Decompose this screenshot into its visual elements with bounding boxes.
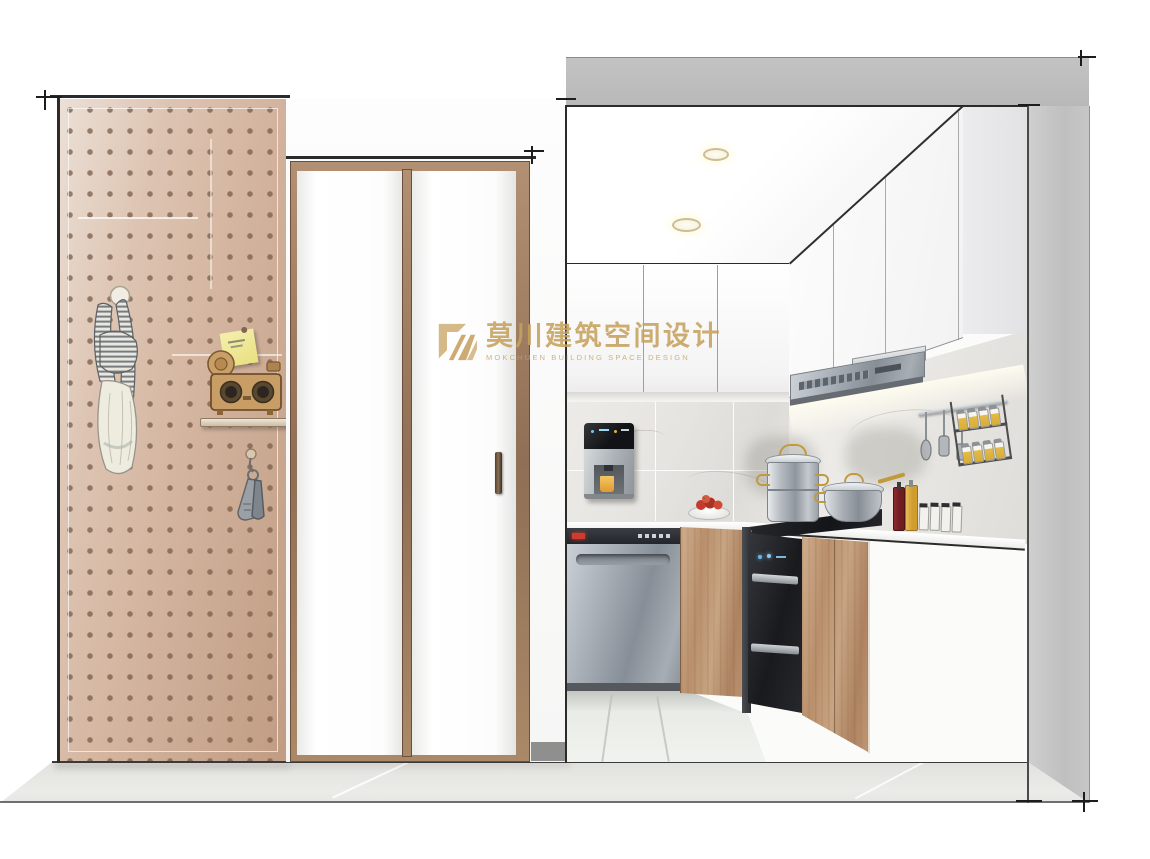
pegboard-left-outline [57, 95, 60, 763]
hanging-keys [228, 446, 270, 526]
sketch-tick [1018, 104, 1040, 106]
hood-controls [875, 363, 901, 374]
jar-cap [930, 503, 938, 507]
door-center-stile [402, 169, 412, 757]
seasoning-jar [941, 506, 952, 532]
spice-rack [950, 395, 1013, 468]
sketch-tick [1078, 56, 1096, 58]
dishwasher [566, 528, 680, 691]
sterilizer-indicator [758, 555, 762, 559]
ceiling-downlight [672, 218, 701, 232]
condiment-bottle-red [893, 487, 905, 531]
sterilizer-indicator [767, 554, 771, 558]
purifier-indicator [591, 430, 594, 433]
purifier-base [584, 494, 634, 499]
purifier-body [584, 449, 634, 494]
sketch-tick [36, 96, 62, 98]
door-right-stile-highlight [518, 169, 523, 757]
disinfection-cabinet [748, 533, 802, 713]
stockpot-handle [756, 474, 770, 486]
entry-baseboard-shadow [531, 742, 566, 761]
right-end-wall [963, 106, 1028, 334]
sketch-tick [1072, 800, 1098, 802]
kitchen-top-outline [566, 105, 1028, 107]
seasoning-jar [952, 505, 963, 532]
floor-shadow [55, 762, 290, 769]
seasoning-jar [930, 506, 941, 531]
bifold-door [290, 161, 530, 762]
pegboard-sketch-stroke [78, 217, 198, 219]
cabinet-divider [958, 112, 959, 340]
purifier-indicator [599, 429, 609, 431]
base-cabinet-doors-right [802, 537, 868, 752]
pegboard-top-outline [50, 95, 290, 98]
tile-grout [733, 402, 734, 527]
purifier-display-panel [584, 423, 634, 449]
door-panel-left [297, 171, 403, 755]
purifier-indicator [614, 430, 617, 433]
dishwasher-handle [576, 554, 670, 565]
purifier-spout [604, 465, 613, 471]
saucepan-body [824, 490, 882, 522]
bottle-cap [897, 482, 901, 489]
sketch-tick [556, 98, 576, 100]
bottle-cap [909, 480, 913, 487]
saucepan-handle [814, 492, 826, 503]
wall-shelf [200, 418, 288, 427]
floor-grout-line [656, 696, 669, 761]
kitchen-left-outline [565, 105, 567, 763]
stockpot [765, 452, 819, 524]
tile-grout [655, 402, 656, 527]
kitchen-floor [566, 688, 766, 762]
jar-cap [952, 502, 960, 506]
dishwasher-buttons [638, 534, 672, 538]
floor-front-edge [0, 801, 1089, 803]
sterilizer-indicator [776, 556, 786, 558]
orange-cup [600, 476, 614, 492]
dishwasher-door [566, 544, 680, 683]
purifier-indicator [621, 429, 629, 431]
brand-name-zh: 莫川建筑空间设计 [486, 323, 722, 350]
stockpot-seam [768, 489, 818, 491]
seasoning-jar [919, 506, 930, 530]
rendering-canvas: 莫川建筑空间设计 MOKCHUEN BUILDING SPACE DESIGN [0, 0, 1150, 859]
floor-shadow [290, 762, 570, 767]
kitchen-room [566, 106, 1028, 762]
door-handle [495, 452, 502, 494]
brand-name-en: MOKCHUEN BUILDING SPACE DESIGN [486, 353, 722, 362]
spice-jar [989, 407, 1001, 426]
stockpot-body [767, 462, 819, 522]
seasoning-jars [919, 504, 964, 532]
saucepan-lid-handle [844, 473, 864, 482]
sticky-note-scribble [228, 339, 245, 343]
saucepan [822, 480, 882, 526]
toy-camera [205, 348, 285, 420]
sketch-tick [524, 150, 544, 152]
cabinet-door-gap [834, 537, 835, 737]
brand-text-block: 莫川建筑空间设计 MOKCHUEN BUILDING SPACE DESIGN [486, 323, 722, 362]
sketch-tick [44, 90, 46, 110]
sterilizer-handle [752, 573, 798, 584]
cabinet-divider [885, 177, 886, 365]
base-cabinet-door [680, 527, 745, 697]
jar-cap [941, 503, 949, 507]
brand-watermark: 莫川建筑空间设计 MOKCHUEN BUILDING SPACE DESIGN [437, 322, 722, 362]
water-purifier [584, 423, 634, 499]
brand-logo-icon [437, 322, 477, 362]
sterilizer-handle [751, 643, 799, 654]
tomatoes [693, 495, 725, 511]
dishwasher-control-panel [566, 528, 680, 544]
floor-grout-line [601, 694, 612, 762]
sketch-tick [1083, 792, 1085, 812]
cabinet-divider [833, 224, 834, 385]
kitchen-right-outline [1027, 105, 1029, 803]
condiment-bottle-yellow [905, 485, 918, 531]
jar-cap [919, 503, 927, 507]
spice-jar [994, 441, 1006, 460]
outside-wall-top-band [566, 57, 1089, 107]
dishwasher-kick [566, 683, 680, 691]
sticky-note-pin [241, 327, 248, 334]
sketch-tick [531, 146, 533, 164]
pegboard-sketch-stroke [210, 139, 212, 289]
dishwasher-display [572, 533, 585, 539]
ceiling-downlight [703, 148, 729, 161]
sketch-tick [1080, 50, 1082, 66]
sketch-tick [1016, 800, 1042, 802]
outside-wall-right-column [1028, 106, 1090, 803]
cabinet-underside-light [566, 392, 789, 402]
hanging-scarf [86, 283, 152, 481]
door-header-outline [286, 156, 536, 159]
